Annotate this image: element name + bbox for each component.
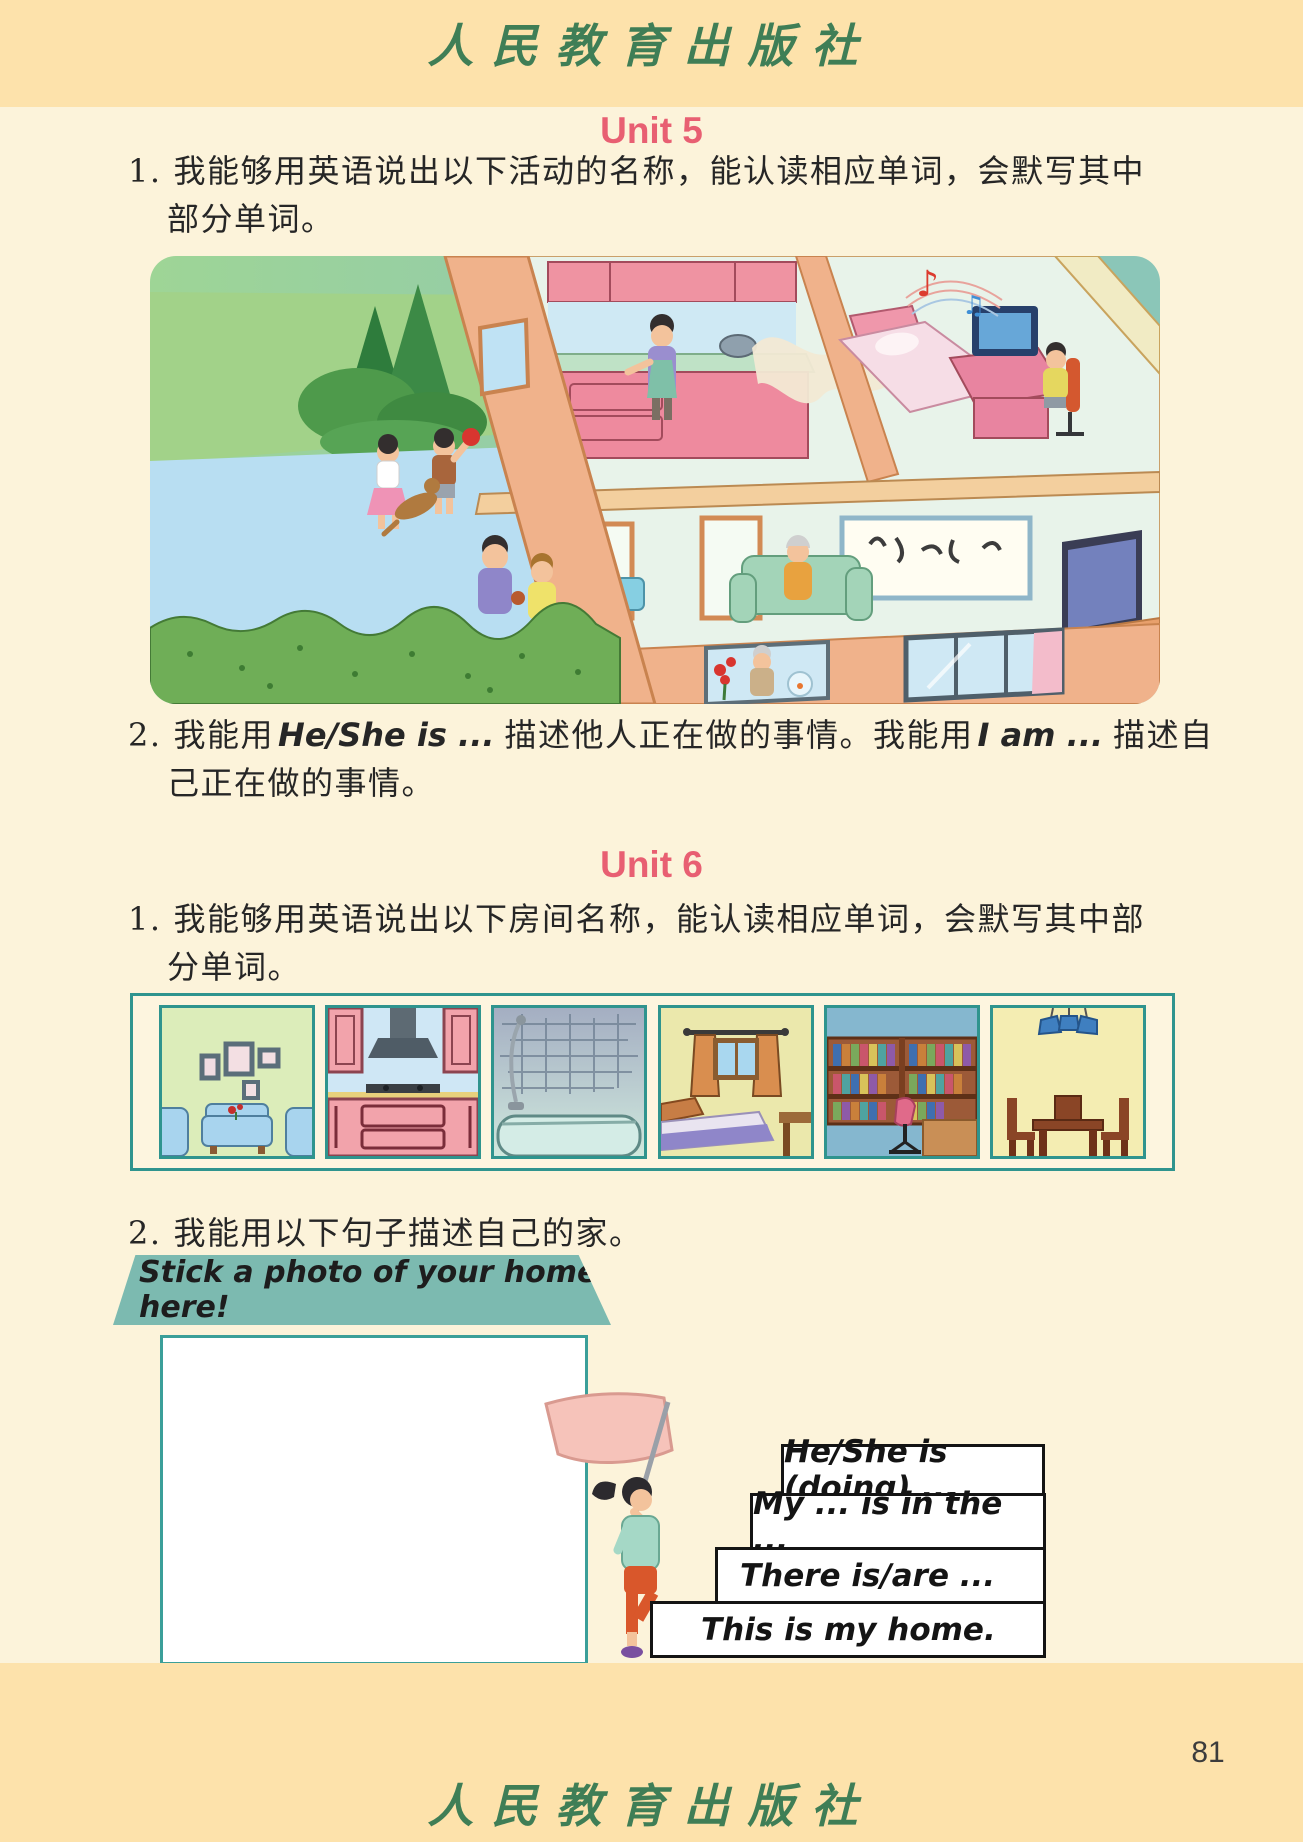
page-number: 81 bbox=[1168, 1736, 1248, 1770]
bathroom-icon bbox=[494, 1008, 644, 1156]
sentence-box-2: My ... is in the ... bbox=[750, 1493, 1046, 1550]
room-image-study bbox=[824, 1005, 980, 1159]
window-curtain bbox=[906, 630, 1062, 700]
study-icon bbox=[827, 1008, 977, 1156]
desk-chair bbox=[895, 1098, 915, 1126]
room-image-bathroom bbox=[491, 1005, 647, 1159]
room-image-kitchen bbox=[325, 1005, 481, 1159]
unit6-item1-line1: 1.我能够用英语说出以下房间名称，能认读相应单词，会默写其中部 bbox=[128, 894, 1145, 940]
unit5-item2-line2: 己正在做的事情。 bbox=[167, 758, 435, 804]
room-pictures-strip bbox=[130, 993, 1175, 1171]
item-text: 我能够用英语说出以下房间名称，能认读相应单词，会默写其中部 bbox=[174, 900, 1146, 938]
bedroom-icon bbox=[661, 1008, 811, 1156]
house-scene: ♪ ♫ bbox=[150, 256, 1160, 704]
stick-photo-banner: Stick a photo of your home here! bbox=[113, 1255, 611, 1325]
room-image-bedroom bbox=[658, 1005, 814, 1159]
photo-placeholder-box bbox=[160, 1335, 588, 1665]
unit5-item2-line1: 2.我能用He/She is ...描述他人正在做的事情。我能用I am ...… bbox=[128, 710, 1214, 756]
music-note-icon: ♪ bbox=[916, 264, 939, 305]
sentence-pattern: I am ... bbox=[978, 716, 1104, 754]
item-number: 2. bbox=[128, 1214, 162, 1252]
living-room-icon bbox=[162, 1008, 312, 1156]
item-text: 我能用 bbox=[174, 716, 275, 754]
room-image-living-room bbox=[159, 1005, 315, 1159]
unit5-item1-line2: 部分单词。 bbox=[167, 194, 335, 240]
sentence-box-4: This is my home. bbox=[650, 1601, 1046, 1658]
item-text: 我能用以下句子描述自己的家。 bbox=[174, 1214, 643, 1252]
item-number: 1. bbox=[128, 152, 162, 190]
room-image-dining-room bbox=[990, 1005, 1146, 1159]
item-number: 1. bbox=[128, 900, 162, 938]
item-number: 2. bbox=[128, 716, 162, 754]
unit6-title: Unit 6 bbox=[0, 844, 1303, 886]
wall-window bbox=[480, 320, 528, 394]
unit6-item2: 2.我能用以下句子描述自己的家。 bbox=[128, 1208, 643, 1254]
publisher-logo-header: 人民教育出版社 bbox=[0, 10, 1303, 76]
music-note-icon: ♫ bbox=[962, 291, 985, 321]
window-grandma-goldfish bbox=[706, 642, 828, 704]
grandpa-watching-tv bbox=[784, 562, 812, 600]
house-activities-illustration: ♪ ♫ bbox=[150, 256, 1160, 704]
unit6-item1-line2: 分单词。 bbox=[167, 942, 301, 988]
item-text: 我能够用英语说出以下活动的名称，能认读相应单词，会默写其中 bbox=[174, 152, 1146, 190]
item-text: 描述自 bbox=[1113, 716, 1214, 754]
unit5-item1-line1: 1.我能够用英语说出以下活动的名称，能认读相应单词，会默写其中 bbox=[128, 146, 1145, 192]
dining-room-icon bbox=[993, 1008, 1143, 1156]
item-text: 描述他人正在做的事情。我能用 bbox=[505, 716, 974, 754]
publisher-logo-footer: 人民教育出版社 bbox=[0, 1770, 1303, 1836]
sentence-box-3: There is/are ... bbox=[715, 1547, 1046, 1604]
kitchen-icon bbox=[328, 1008, 478, 1156]
sentence-pattern: He/She is ... bbox=[278, 716, 494, 754]
